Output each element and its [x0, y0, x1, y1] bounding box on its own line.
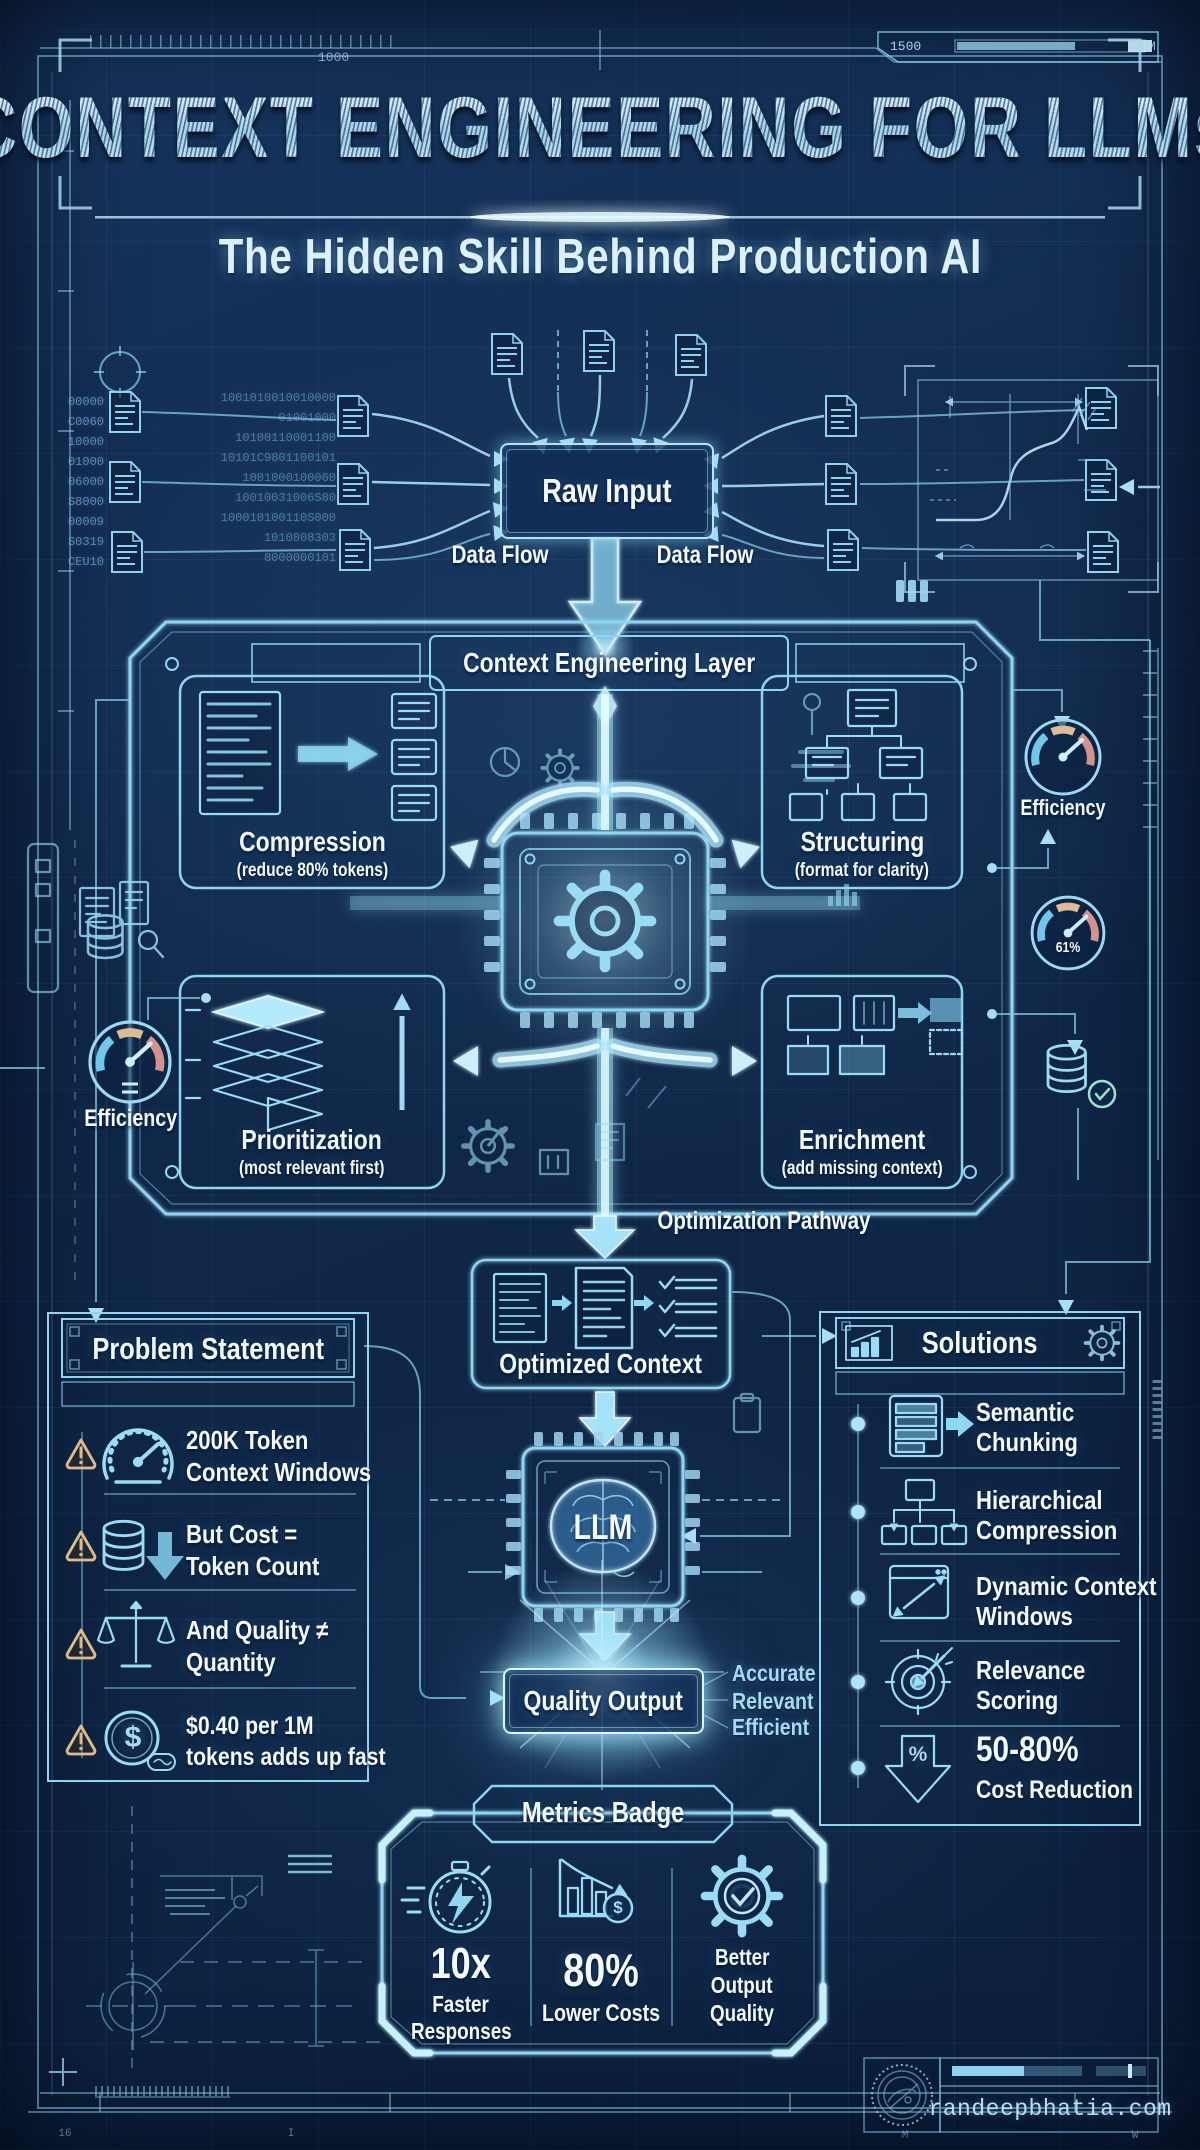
structuring-label: Structuring [764, 824, 960, 860]
data-flow-right-label: Data Flow [630, 540, 780, 570]
optimized-context-label: Optimized Context [478, 1346, 724, 1382]
stopwatch-icon [402, 1862, 490, 1932]
tree-icon [882, 1480, 966, 1544]
dollar-glyph: $ [116, 1720, 150, 1756]
metric2-label: Lower Costs [526, 2000, 676, 2028]
bottom-mark-2: I [276, 2126, 306, 2142]
ruler-label-1000: 1000 [318, 50, 388, 65]
metric1-label: FasterResponses [392, 1990, 530, 2046]
page-subtitle: The Hidden Skill Behind Production AI [218, 229, 981, 285]
solution-item-1: SemanticChunking [976, 1396, 1136, 1458]
chunking-icon [890, 1396, 974, 1456]
scales-icon [98, 1602, 174, 1666]
database-check-icon [1048, 1045, 1115, 1107]
solution-item-3: Dynamic ContextWindows [976, 1570, 1136, 1632]
metric3-label: BetterOutputQuality [674, 1942, 810, 2028]
gauge-icon [104, 1430, 172, 1482]
efficiency-gauge-left [90, 1022, 170, 1102]
raw-input-label: Raw Input [542, 472, 671, 510]
problem-item-4: $0.40 per 1Mtokens adds up fast [186, 1708, 366, 1776]
hazard-stripe [836, 1372, 1124, 1394]
percent-glyph: % [896, 1742, 940, 1768]
metric1-value: 10x [392, 1940, 530, 1988]
solution-item-2: HierarchicalCompression [976, 1484, 1136, 1546]
warning-icon [67, 1630, 95, 1658]
percent-gauge [1032, 897, 1104, 969]
gear-check-icon [705, 1859, 779, 1933]
dollar-glyph-small: $ [604, 1894, 632, 1922]
enrichment-icon [788, 996, 962, 1074]
warning-icon [67, 1440, 95, 1468]
bottom-mark-4: W [1120, 2128, 1150, 2144]
structuring-desc: (format for clarity) [764, 858, 960, 884]
gauge-percent-value: 61% [1042, 938, 1094, 956]
compression-icon [200, 692, 436, 820]
prioritization-desc: (most relevant first) [184, 1156, 440, 1182]
solutions-title: Solutions [836, 1322, 1124, 1364]
hazard-stripe [62, 1382, 354, 1406]
metric2-value: 80% [534, 1944, 668, 1996]
compression-label: Compression [184, 824, 440, 860]
seal-logo [872, 2065, 932, 2125]
bottom-left-sketch [49, 1806, 380, 2097]
quality-output-label: Quality Output [524, 1685, 683, 1717]
warning-icon [67, 1726, 95, 1754]
tag-relevant: Relevant [732, 1688, 862, 1715]
problem-item-3: And Quality ≠Quantity [186, 1612, 366, 1680]
warning-icon [67, 1532, 95, 1560]
llm-label: LLM [543, 1508, 663, 1548]
ruler-label-1500: 1500 [890, 39, 946, 54]
problem-item-1: 200K TokenContext Windows [186, 1422, 366, 1490]
solution-item-4: RelevanceScoring [976, 1654, 1136, 1716]
window-expand-icon [890, 1566, 948, 1620]
tag-accurate: Accurate [732, 1660, 862, 1687]
metrics-title: Metrics Badge [474, 1790, 732, 1836]
enrichment-label: Enrichment [764, 1122, 960, 1158]
data-sources-icon [80, 882, 163, 958]
data-flow-left-label: Data Flow [430, 540, 570, 570]
binary-decor-mid: 1001010010010000 01001000 10100110001100… [186, 388, 336, 568]
prioritization-label: Prioritization [184, 1122, 440, 1158]
right-decor [1026, 720, 1115, 1107]
raw-input-node: Raw Input [500, 443, 714, 539]
bottom-mark-1: 16 [50, 2126, 80, 2142]
page-title: CONTEXT ENGINEERING FOR LLMs [0, 79, 1200, 178]
quality-output-node: Quality Output [503, 1668, 704, 1734]
blueprint-inset-sketch [905, 366, 1158, 640]
compression-desc: (reduce 80% tokens) [184, 858, 440, 884]
page-subtitle-wrap: The Hidden Skill Behind Production AI [0, 224, 1200, 290]
website-url: randeepbhatia.com [948, 2090, 1152, 2128]
problem-item-2: But Cost =Token Count [186, 1516, 366, 1584]
documents-transform-icons [494, 1268, 716, 1348]
efficiency-label-left: Efficiency [66, 1106, 196, 1132]
prioritization-icon [186, 994, 411, 1131]
page-title-wrap: CONTEXT ENGINEERING FOR LLMs [0, 70, 1200, 186]
infographic-canvas: 1000 1500 M CONTEXT ENGINEERING FOR LLMs… [0, 0, 1200, 2150]
down-arrow-layer-to-optimized [576, 1216, 634, 1258]
solution-item-5: 50-80% Cost Reduction [976, 1730, 1136, 1805]
binary-decor-left: 00000 C0060 10000 01000 06000 S8000 0000… [4, 392, 104, 572]
progress-bar-fill [952, 2066, 1024, 2076]
efficiency-label-right: Efficiency [1003, 796, 1123, 820]
layer-title: Context Engineering Layer [430, 638, 788, 688]
database-down-icon [104, 1521, 184, 1580]
bottom-mark-3: M [890, 2128, 920, 2144]
tag-efficient: Efficient [732, 1714, 862, 1741]
clipboard-icon [734, 1394, 760, 1432]
enrichment-desc: (add missing context) [764, 1156, 960, 1182]
optimization-pathway-label: Optimization Pathway [638, 1206, 890, 1236]
target-icon [886, 1648, 952, 1714]
efficiency-gauge-right [1026, 720, 1100, 794]
ruler-unit: M [1148, 39, 1174, 54]
problem-title: Problem Statement [62, 1326, 354, 1372]
gear-icon [559, 875, 651, 967]
